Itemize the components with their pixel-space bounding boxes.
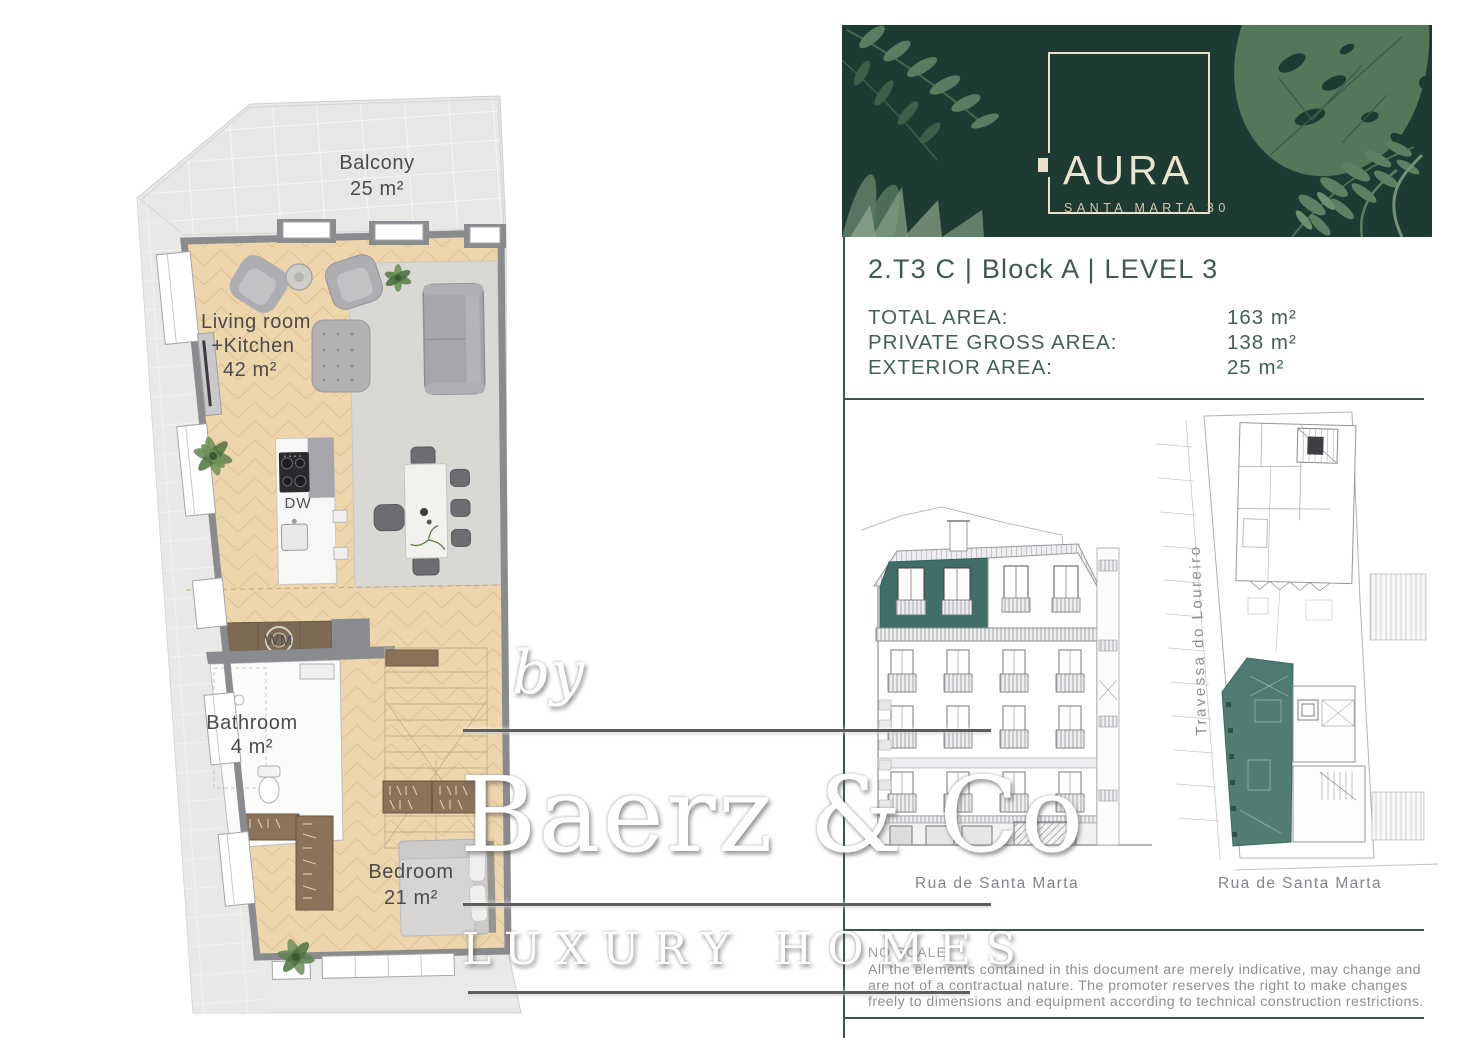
bedroom-area: 21 m² (384, 887, 438, 910)
balcony-area: 25 m² (350, 178, 404, 201)
elevator-core (1307, 436, 1323, 454)
neighbour-building (1097, 548, 1119, 845)
pillow-icon (469, 845, 486, 881)
upper-units (1236, 423, 1356, 592)
private-gross-area-label: PRIVATE GROSS AREA: (868, 331, 1118, 355)
disclaimer-line: All the elements contained in this docum… (868, 962, 1421, 978)
chimney (950, 521, 967, 551)
total-area-value: 163 m² (1227, 306, 1297, 330)
leaf-frond-icon (842, 25, 1001, 160)
elevation-drawing (862, 507, 1152, 845)
balcony-region (141, 99, 504, 235)
pouf (312, 320, 370, 392)
cooktop-icon (279, 452, 310, 493)
brand-banner: AURA SANTA MARTA 30 (842, 25, 1432, 237)
coffee-table-icon (286, 264, 312, 290)
private-gross-area-value: 138 m² (1227, 331, 1297, 355)
divider (843, 929, 1424, 931)
floor-plan (137, 96, 521, 1013)
exterior-area-value: 25 m² (1227, 356, 1284, 380)
living-room-label: Living room (201, 311, 311, 334)
bathroom-area: 4 m² (231, 736, 273, 759)
disclaimer-line: are not of a contractual nature. The pro… (868, 978, 1408, 994)
toilet-icon (258, 766, 280, 803)
panel-left-border (843, 237, 845, 1038)
logo-frame-tick (1038, 158, 1048, 172)
dishwasher-label: DW (285, 495, 312, 512)
stair-rail (386, 650, 438, 666)
bedroom-label: Bedroom (368, 861, 453, 884)
adjacent-units (1293, 686, 1365, 842)
sofa (423, 283, 485, 394)
bar-stool-icon (334, 547, 348, 559)
divider (843, 1017, 1424, 1019)
scale-note: NO SCALE (868, 944, 947, 960)
brochure-page: AURA SANTA MARTA 30 2.T3 C | Block A | L… (0, 0, 1458, 1038)
vanity-icon (300, 664, 334, 679)
balcony-label: Balcony (339, 152, 414, 175)
bathroom-label: Bathroom (206, 712, 298, 735)
wardrobe (383, 781, 480, 813)
site-plan-caption: Rua de Santa Marta (1218, 875, 1382, 893)
storefront (878, 816, 1097, 845)
highlighted-floor (880, 558, 988, 628)
washing-machine-label: WM (265, 632, 294, 649)
kitchen-label: +Kitchen (211, 335, 294, 358)
divider (843, 398, 1424, 400)
bar-stool-icon (333, 510, 347, 522)
unit-title: 2.T3 C | Block A | LEVEL 3 (868, 254, 1218, 285)
total-area-label: TOTAL AREA: (868, 306, 1009, 330)
project-logo-subtitle: SANTA MARTA 30 (1064, 201, 1230, 215)
leaf-blade-icon (842, 174, 984, 237)
pillow-icon (469, 885, 488, 922)
living-room-area: 42 m² (223, 359, 277, 382)
project-logo: AURA (1063, 147, 1193, 194)
elevation-caption: Rua de Santa Marta (915, 875, 1079, 893)
exterior-area-label: EXTERIOR AREA: (868, 356, 1053, 380)
highlighted-unit (1222, 658, 1293, 846)
disclaimer-line: freely to dimensions and equipment accor… (868, 994, 1424, 1010)
